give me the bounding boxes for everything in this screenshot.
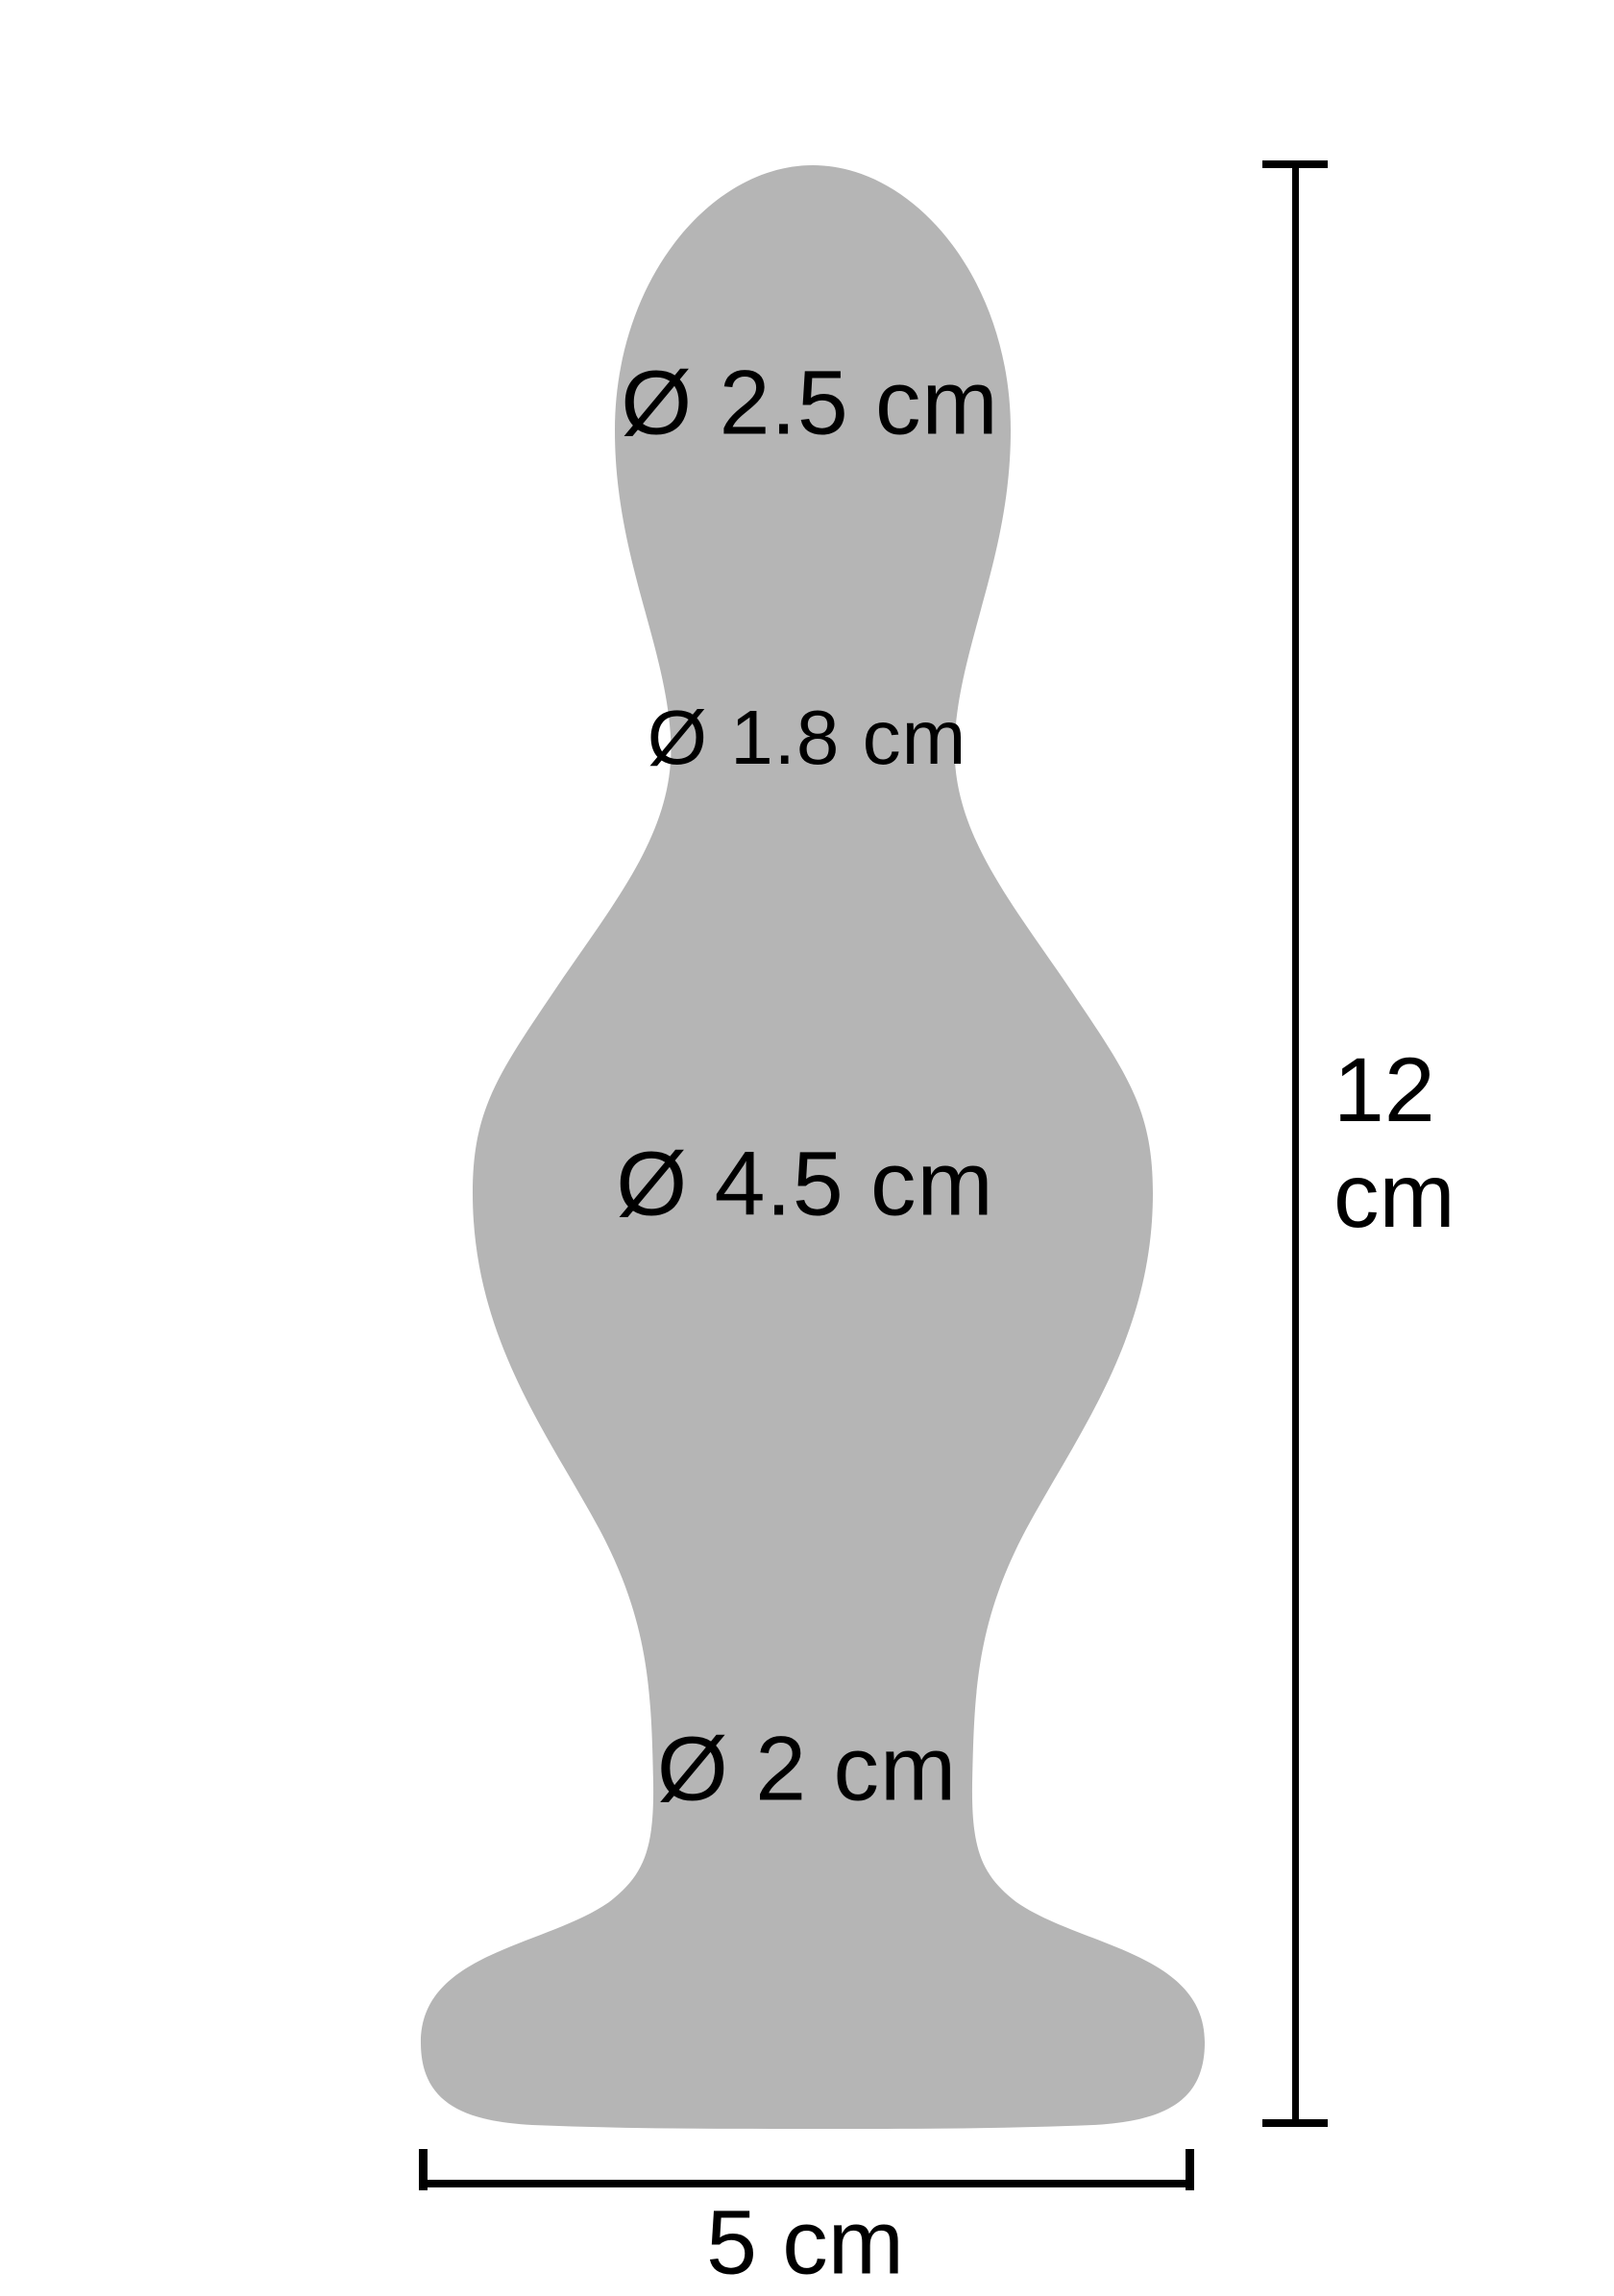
neck-diameter-label: Ø 1.8 cm — [648, 699, 967, 776]
height-dimension-line — [1292, 163, 1299, 2125]
height-value: 12 — [1333, 1038, 1455, 1143]
height-dimension-top-cap — [1262, 160, 1328, 168]
base-width-right-cap — [1186, 2149, 1194, 2190]
stem-diameter-label: Ø 2 cm — [657, 1724, 957, 1816]
height-unit: cm — [1333, 1143, 1455, 1249]
body-diameter-label: Ø 4.5 cm — [616, 1139, 993, 1231]
height-dimension-bottom-cap — [1262, 2119, 1328, 2127]
height-dimension-label: 12 cm — [1333, 1038, 1455, 1249]
diagram-canvas: Ø 2.5 cm Ø 1.8 cm Ø 4.5 cm Ø 2 cm 12 cm … — [0, 0, 1614, 2286]
base-width-label: 5 cm — [706, 2191, 904, 2296]
base-width-left-cap — [419, 2149, 428, 2190]
top-bulb-diameter-label: Ø 2.5 cm — [621, 358, 998, 450]
base-width-dimension-line — [419, 2180, 1194, 2187]
